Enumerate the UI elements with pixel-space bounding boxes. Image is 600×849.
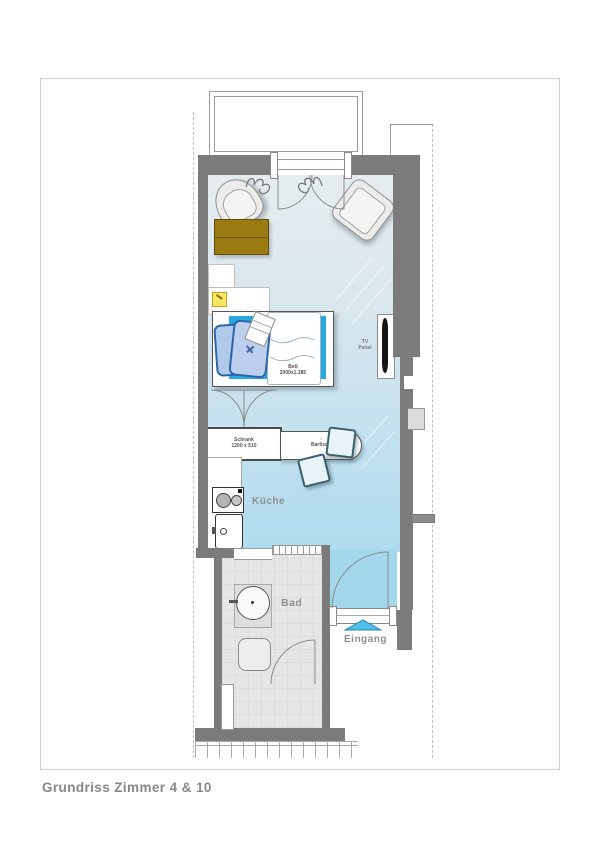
entrance-label: Eingang — [344, 634, 387, 645]
balcony-door-arc-left — [278, 175, 312, 209]
entrance-arrow — [344, 619, 384, 632]
entrance-door-arc — [332, 552, 388, 608]
bottom-hatch-line — [195, 745, 358, 746]
page-title: Grundriss Zimmer 4 & 10 — [42, 780, 212, 795]
entrance-arrow-icon — [345, 620, 381, 630]
floor-plan-page: Bett 2000x1.385 TV Panel Schrank 1200 x … — [0, 0, 600, 849]
balcony-door-arc-right — [310, 175, 344, 209]
bottom-hatch-strip — [195, 741, 358, 758]
door-swings — [0, 0, 600, 849]
